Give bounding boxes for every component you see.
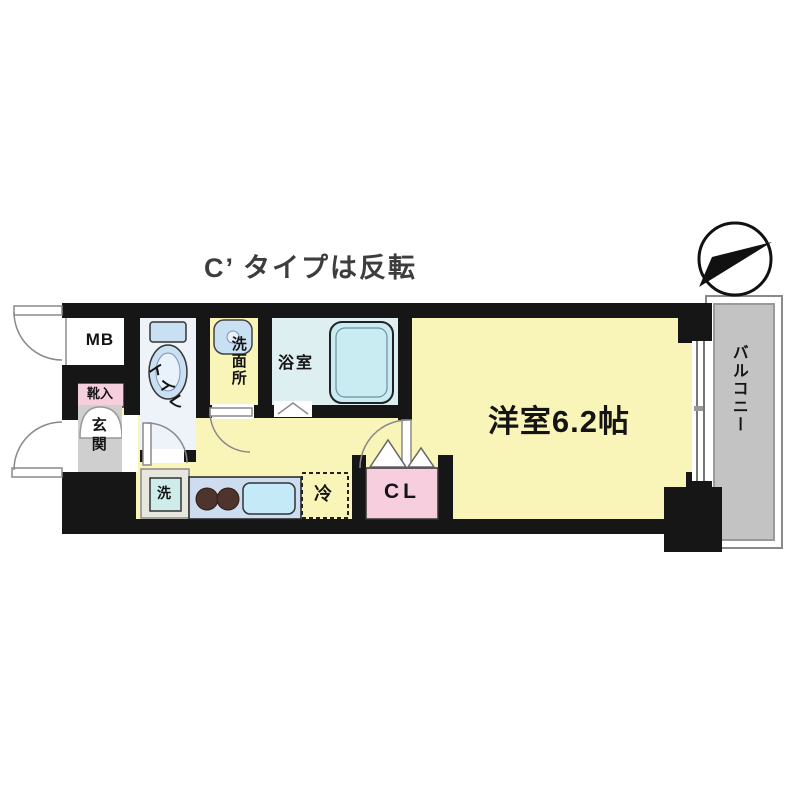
wall-closet-right <box>438 455 453 519</box>
room-label-balcony: バルコニー <box>729 344 746 434</box>
room-label-bathroom: 浴室 <box>274 356 318 373</box>
entrance-door-arc <box>14 422 62 470</box>
room-label-main-room: 洋室6.2帖 <box>438 406 680 439</box>
washroom-door-leaf <box>210 408 252 416</box>
room-label-shoe-cabinet: 靴入 <box>76 387 124 401</box>
wall-top <box>62 303 712 318</box>
north-arrow-icon <box>699 223 772 295</box>
wall-bath-mainroom <box>398 303 412 420</box>
mainroom-door-leaf <box>402 420 411 468</box>
plan-title: C’ タイプは反転 <box>204 254 417 282</box>
pillar-bottom-right <box>664 487 722 552</box>
wall-bottom-left-block <box>62 472 136 534</box>
window-mid-rail <box>694 406 703 411</box>
toilet-tank-icon <box>150 322 186 342</box>
mb-door-leaf <box>14 306 62 315</box>
mb-doorway <box>62 318 77 365</box>
stove-burner-icon-left <box>196 488 218 510</box>
kitchen-sink-icon <box>243 483 295 514</box>
wall-washroom-bath <box>258 303 272 415</box>
room-label-washer: 洗 <box>157 486 171 501</box>
entrance-door-leaf <box>12 468 62 477</box>
mb-door-arc <box>14 312 62 360</box>
toilet-door-leaf <box>143 423 151 465</box>
bathtub-icon <box>330 322 393 403</box>
entrance-step <box>122 415 138 472</box>
entrance-doorway <box>62 420 78 472</box>
room-label-washroom: 洗面所 <box>230 336 246 387</box>
room-label-fridge: 冷 <box>314 485 332 504</box>
stove-burner-icon-right <box>217 488 239 510</box>
floorplan-page: C’ タイプは反転 MB 靴入 玄関 トイレ 洗面所 浴室 洗 冷 CL 洋室6… <box>0 0 800 800</box>
wall-mb-toilet <box>124 318 140 415</box>
room-label-closet: CL <box>366 481 438 503</box>
wall-closet-left <box>352 455 366 519</box>
room-label-entrance: 玄関 <box>90 417 106 455</box>
wall-under-mb <box>76 365 124 383</box>
wall-right-upper <box>696 303 712 345</box>
wall-bottom <box>62 519 712 534</box>
room-label-mb: MB <box>76 331 124 349</box>
wall-toilet-washroom <box>196 303 210 415</box>
balcony-window <box>692 341 712 481</box>
